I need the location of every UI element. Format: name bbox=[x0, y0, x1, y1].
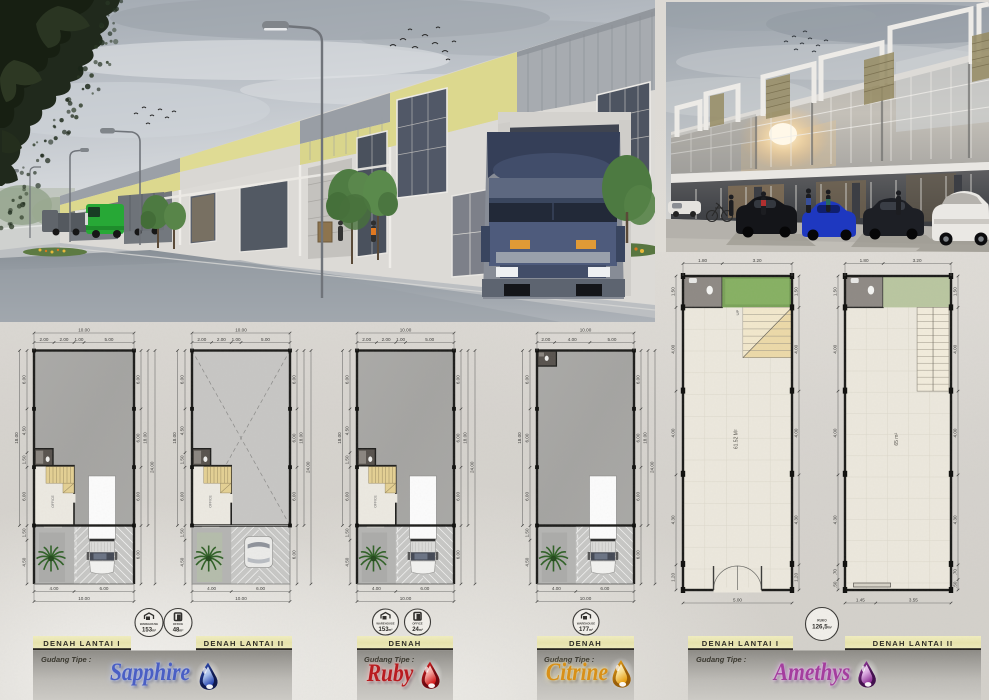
svg-text:61.52 M²: 61.52 M² bbox=[734, 429, 740, 449]
svg-text:4.30: 4.30 bbox=[670, 515, 675, 524]
svg-text:4.50: 4.50 bbox=[179, 557, 184, 566]
svg-text:WAREHOUSE: WAREHOUSE bbox=[140, 622, 158, 626]
svg-text:6.00: 6.00 bbox=[455, 492, 460, 501]
svg-text:4.00: 4.00 bbox=[670, 428, 675, 437]
svg-text:18.00: 18.00 bbox=[517, 432, 522, 444]
svg-text:.50: .50 bbox=[952, 581, 957, 588]
svg-text:4.50: 4.50 bbox=[21, 557, 26, 566]
svg-text:4.00: 4.00 bbox=[568, 337, 577, 342]
svg-text:6.00: 6.00 bbox=[524, 492, 529, 501]
svg-text:10.00: 10.00 bbox=[400, 327, 412, 332]
svg-text:WAREHOUSE: WAREHOUSE bbox=[577, 622, 595, 626]
svg-text:3.20: 3.20 bbox=[913, 258, 922, 263]
svg-text:6.00: 6.00 bbox=[344, 492, 349, 501]
svg-text:5.00: 5.00 bbox=[607, 337, 616, 342]
svg-text:2.00: 2.00 bbox=[362, 337, 371, 342]
svg-text:1.50: 1.50 bbox=[21, 455, 26, 464]
svg-text:OFFICE: OFFICE bbox=[173, 622, 183, 626]
svg-text:.70: .70 bbox=[832, 569, 837, 576]
svg-text:OFFICE: OFFICE bbox=[373, 495, 377, 508]
svg-text:4.00: 4.00 bbox=[50, 586, 59, 591]
svg-text:4.00: 4.00 bbox=[952, 428, 957, 437]
svg-text:1.50: 1.50 bbox=[344, 455, 349, 464]
svg-text:5.00: 5.00 bbox=[733, 597, 742, 602]
svg-text:1.00: 1.00 bbox=[232, 337, 241, 342]
svg-text:6.00: 6.00 bbox=[135, 492, 140, 501]
svg-text:5.00: 5.00 bbox=[105, 337, 114, 342]
svg-text:4.00: 4.00 bbox=[952, 344, 957, 353]
svg-text:4.00: 4.00 bbox=[552, 586, 561, 591]
svg-text:6.00: 6.00 bbox=[135, 550, 140, 559]
svg-text:1.00: 1.00 bbox=[75, 337, 84, 342]
svg-text:6.00: 6.00 bbox=[635, 550, 640, 559]
svg-text:126,5m²: 126,5m² bbox=[812, 624, 832, 631]
svg-text:2.00: 2.00 bbox=[40, 337, 49, 342]
svg-text:1.80: 1.80 bbox=[698, 258, 707, 263]
svg-text:2.00: 2.00 bbox=[197, 337, 206, 342]
svg-text:1.50: 1.50 bbox=[524, 528, 529, 537]
svg-text:1.00: 1.00 bbox=[396, 337, 405, 342]
svg-text:6.00: 6.00 bbox=[455, 550, 460, 559]
svg-text:6.00: 6.00 bbox=[600, 586, 609, 591]
svg-text:OFFICE: OFFICE bbox=[51, 495, 55, 508]
svg-text:18.00: 18.00 bbox=[14, 432, 19, 444]
svg-text:6.00: 6.00 bbox=[179, 492, 184, 501]
svg-text:6.00: 6.00 bbox=[524, 433, 529, 442]
svg-text:10.00: 10.00 bbox=[580, 327, 592, 332]
svg-text:1.45: 1.45 bbox=[856, 597, 865, 602]
svg-text:4.00: 4.00 bbox=[207, 586, 216, 591]
svg-text:6.00: 6.00 bbox=[291, 433, 296, 442]
svg-text:3.20: 3.20 bbox=[753, 258, 762, 263]
svg-text:10.00: 10.00 bbox=[235, 327, 247, 332]
svg-text:6.00: 6.00 bbox=[21, 492, 26, 501]
svg-text:3.55: 3.55 bbox=[909, 597, 918, 602]
svg-text:6.00: 6.00 bbox=[291, 492, 296, 501]
svg-text:6.00: 6.00 bbox=[635, 492, 640, 501]
svg-text:1.50: 1.50 bbox=[179, 528, 184, 537]
svg-text:2.00: 2.00 bbox=[217, 337, 226, 342]
svg-text:5.00: 5.00 bbox=[261, 337, 270, 342]
svg-text:2.00: 2.00 bbox=[382, 337, 391, 342]
svg-text:4.00: 4.00 bbox=[793, 428, 798, 437]
svg-text:6.00: 6.00 bbox=[135, 433, 140, 442]
svg-text:4.00: 4.00 bbox=[793, 344, 798, 353]
svg-text:2.00: 2.00 bbox=[60, 337, 69, 342]
svg-text:18.00: 18.00 bbox=[298, 432, 303, 444]
svg-text:4.00: 4.00 bbox=[832, 344, 837, 353]
svg-text:10.00: 10.00 bbox=[78, 327, 90, 332]
svg-text:WAREHOUSE: WAREHOUSE bbox=[376, 622, 394, 626]
svg-text:4.00: 4.00 bbox=[372, 586, 381, 591]
svg-text:6.00: 6.00 bbox=[179, 375, 184, 384]
svg-text:6.00: 6.00 bbox=[455, 433, 460, 442]
svg-text:18.00: 18.00 bbox=[172, 432, 177, 444]
svg-text:4.00: 4.00 bbox=[670, 344, 675, 353]
svg-text:24.00: 24.00 bbox=[469, 461, 474, 473]
svg-text:4.50: 4.50 bbox=[344, 426, 349, 435]
svg-text:RUKO: RUKO bbox=[817, 619, 827, 623]
svg-text:6.00: 6.00 bbox=[291, 550, 296, 559]
svg-text:2.00: 2.00 bbox=[541, 337, 550, 342]
svg-text:6.00: 6.00 bbox=[455, 375, 460, 384]
svg-text:65 m²: 65 m² bbox=[894, 433, 900, 446]
svg-text:6.00: 6.00 bbox=[524, 375, 529, 384]
svg-text:4.50: 4.50 bbox=[179, 426, 184, 435]
svg-text:6.00: 6.00 bbox=[21, 375, 26, 384]
svg-text:4.50: 4.50 bbox=[524, 557, 529, 566]
svg-text:6.00: 6.00 bbox=[291, 375, 296, 384]
svg-text:6.00: 6.00 bbox=[344, 375, 349, 384]
svg-text:6.00: 6.00 bbox=[100, 586, 109, 591]
svg-text:UP: UP bbox=[735, 310, 740, 316]
svg-text:6.00: 6.00 bbox=[635, 433, 640, 442]
svg-text:18.00: 18.00 bbox=[337, 432, 342, 444]
svg-text:4.00: 4.00 bbox=[832, 428, 837, 437]
svg-text:6.00: 6.00 bbox=[135, 375, 140, 384]
svg-text:4.50: 4.50 bbox=[21, 426, 26, 435]
svg-text:1.20: 1.20 bbox=[670, 573, 675, 582]
svg-text:1.50: 1.50 bbox=[344, 528, 349, 537]
svg-text:24.00: 24.00 bbox=[649, 461, 654, 473]
svg-text:5.00: 5.00 bbox=[425, 337, 434, 342]
svg-text:.70: .70 bbox=[952, 569, 957, 576]
svg-text:10.00: 10.00 bbox=[78, 596, 90, 601]
svg-text:10.00: 10.00 bbox=[235, 596, 247, 601]
svg-text:1.50: 1.50 bbox=[670, 287, 675, 296]
svg-text:1.20: 1.20 bbox=[793, 573, 798, 582]
svg-text:.50: .50 bbox=[832, 581, 837, 588]
svg-text:4.50: 4.50 bbox=[344, 557, 349, 566]
svg-text:18.00: 18.00 bbox=[642, 432, 647, 444]
svg-text:OFFICE: OFFICE bbox=[209, 495, 213, 508]
svg-text:1.50: 1.50 bbox=[179, 455, 184, 464]
svg-text:1.50: 1.50 bbox=[21, 528, 26, 537]
svg-text:OFFICE: OFFICE bbox=[412, 622, 422, 626]
svg-text:1.50: 1.50 bbox=[832, 287, 837, 296]
svg-text:10.00: 10.00 bbox=[400, 596, 412, 601]
svg-text:4.30: 4.30 bbox=[952, 515, 957, 524]
svg-text:6.00: 6.00 bbox=[256, 586, 265, 591]
svg-text:24.00: 24.00 bbox=[305, 461, 310, 473]
svg-text:6.00: 6.00 bbox=[635, 375, 640, 384]
svg-text:1.50: 1.50 bbox=[952, 287, 957, 296]
svg-text:4.30: 4.30 bbox=[832, 515, 837, 524]
svg-text:10.00: 10.00 bbox=[580, 596, 592, 601]
svg-text:18.00: 18.00 bbox=[142, 432, 147, 444]
svg-text:6.00: 6.00 bbox=[420, 586, 429, 591]
svg-text:1.50: 1.50 bbox=[793, 287, 798, 296]
svg-text:1.80: 1.80 bbox=[860, 258, 869, 263]
svg-text:4.30: 4.30 bbox=[793, 515, 798, 524]
svg-text:18.00: 18.00 bbox=[462, 432, 467, 444]
svg-text:24.00: 24.00 bbox=[149, 461, 154, 473]
